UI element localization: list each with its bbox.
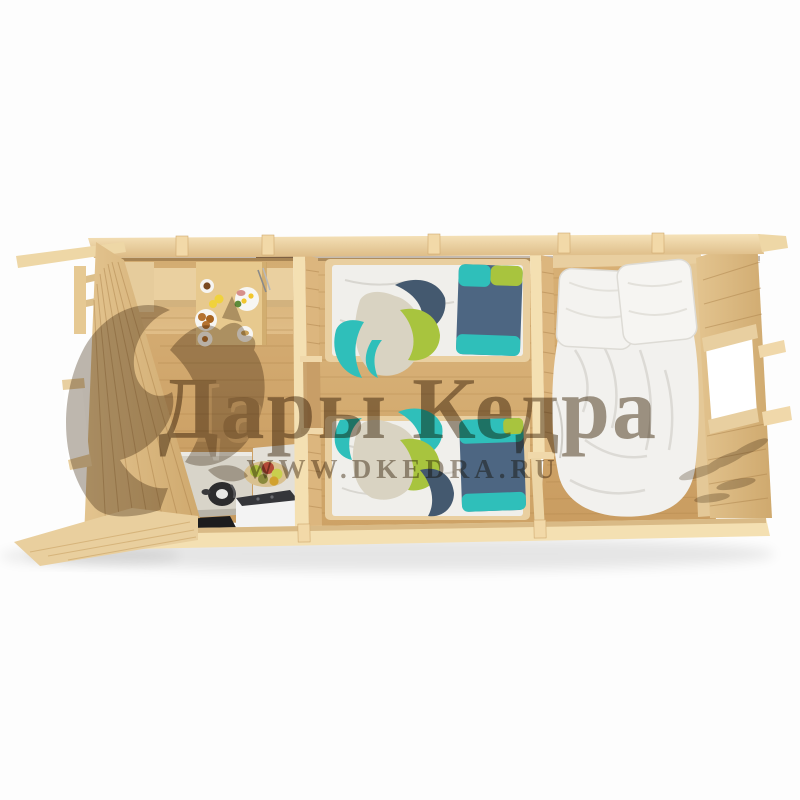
cabin-render: Дары Кедра Дары Кедра WWW.DKEDRA.RU WWW.…: [0, 0, 800, 800]
url-watermark-text: WWW.DKEDRA.RU: [246, 454, 559, 484]
brand-watermark-text: Дары Кедра: [158, 361, 658, 458]
render-canvas: Дары Кедра Дары Кедра WWW.DKEDRA.RU WWW.…: [0, 0, 800, 800]
bed1-pillow: [456, 264, 523, 356]
double-bed-pillows: [556, 258, 698, 350]
